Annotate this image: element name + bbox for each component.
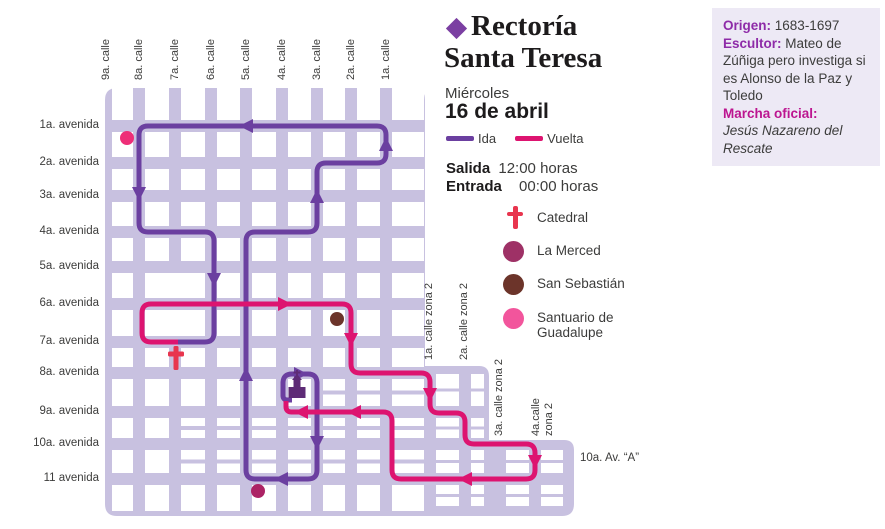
city-block bbox=[181, 418, 205, 426]
city-block bbox=[217, 310, 240, 336]
city-block bbox=[112, 348, 133, 367]
city-block bbox=[357, 450, 380, 460]
calle-label: 1a. calle bbox=[380, 39, 393, 80]
city-block bbox=[288, 273, 311, 298]
city-block bbox=[252, 132, 276, 157]
city-block bbox=[471, 374, 484, 389]
origen-value: 1683-1697 bbox=[775, 18, 840, 33]
city-block bbox=[392, 88, 424, 120]
city-block bbox=[392, 418, 424, 426]
zona2-calle-label: 3a. calle zona 2 bbox=[493, 359, 506, 436]
city-block bbox=[357, 418, 380, 426]
city-block bbox=[288, 88, 311, 120]
city-block bbox=[288, 464, 311, 474]
calle-label: 2a. calle bbox=[345, 39, 358, 80]
city-block bbox=[323, 464, 345, 474]
city-block bbox=[252, 418, 276, 426]
escultor-label: Escultor: bbox=[723, 36, 782, 51]
entrada-label: Entrada bbox=[446, 178, 502, 195]
city-block bbox=[217, 418, 240, 426]
city-block bbox=[288, 132, 311, 157]
city-block bbox=[181, 379, 205, 406]
entrada-row: Entrada 00:00 horas bbox=[446, 178, 598, 195]
city-block bbox=[392, 132, 424, 157]
infographic-page: 9a. calle8a. calle7a. calle6a. calle5a. … bbox=[0, 0, 885, 529]
ida-line-icon bbox=[446, 136, 474, 141]
city-block bbox=[217, 238, 240, 261]
landmark-church-icon bbox=[294, 372, 301, 374]
landmark-dot bbox=[330, 312, 344, 326]
city-block bbox=[181, 169, 205, 190]
city-block bbox=[145, 169, 169, 190]
city-block bbox=[217, 348, 240, 367]
city-block bbox=[436, 450, 459, 460]
city-block bbox=[392, 485, 424, 511]
san-sebastian-dot-icon bbox=[503, 274, 524, 295]
city-block bbox=[288, 430, 311, 438]
city-block bbox=[323, 132, 345, 157]
avenida-label: 2a. avenida bbox=[0, 155, 99, 169]
legend-item-catedral: Catedral bbox=[506, 206, 588, 230]
catedral-cross-icon bbox=[506, 206, 524, 230]
city-block bbox=[357, 132, 380, 157]
city-block bbox=[145, 418, 169, 438]
city-block bbox=[252, 169, 276, 190]
city-block bbox=[357, 273, 380, 298]
city-block bbox=[323, 169, 345, 190]
city-block bbox=[471, 392, 484, 407]
city-block bbox=[217, 485, 240, 511]
city-block bbox=[323, 395, 345, 407]
city-block bbox=[323, 485, 345, 511]
city-block bbox=[357, 202, 380, 226]
salida-value: 12:00 horas bbox=[498, 160, 577, 177]
legend-label: La Merced bbox=[537, 243, 601, 258]
legend-label: Catedral bbox=[537, 210, 588, 225]
avenida-a-label: 10a. Av. “A” bbox=[580, 452, 639, 464]
calle-label: 5a. calle bbox=[240, 39, 253, 80]
city-block bbox=[436, 418, 459, 427]
city-block bbox=[471, 430, 484, 439]
zona2-calle-label: 1a. calle zona 2 bbox=[423, 283, 436, 360]
city-block bbox=[436, 374, 459, 389]
avenida-label: 7a. avenida bbox=[0, 334, 99, 348]
city-block bbox=[217, 88, 240, 120]
city-block bbox=[541, 497, 563, 506]
landmark-dot bbox=[120, 131, 134, 145]
city-block bbox=[392, 310, 424, 336]
legend-label: San Sebastián bbox=[537, 276, 625, 291]
city-block bbox=[288, 169, 311, 190]
origen-label: Origen: bbox=[723, 18, 771, 33]
marcha-value: Jesús Nazareno del Rescate bbox=[723, 123, 842, 156]
avenida-label: 10a. avenida bbox=[0, 436, 99, 450]
city-block bbox=[112, 202, 133, 226]
city-block bbox=[181, 238, 205, 261]
city-block bbox=[357, 430, 380, 438]
city-block bbox=[323, 202, 345, 226]
page-title-line2: Santa Teresa bbox=[444, 42, 602, 74]
city-block bbox=[217, 202, 240, 226]
city-block bbox=[392, 238, 424, 261]
city-block bbox=[145, 450, 169, 473]
landmark-church-icon bbox=[294, 379, 301, 398]
city-block bbox=[112, 418, 133, 438]
city-block bbox=[323, 273, 345, 298]
vuelta-label: Vuelta bbox=[547, 131, 583, 146]
city-block bbox=[392, 379, 424, 391]
city-block bbox=[541, 450, 563, 460]
city-block bbox=[145, 88, 169, 120]
entrada-value: 00:00 horas bbox=[519, 178, 598, 195]
city-block bbox=[181, 464, 205, 474]
city-block bbox=[357, 464, 380, 474]
city-block bbox=[181, 88, 205, 120]
calle-label: 6a. calle bbox=[205, 39, 218, 80]
santuario-dot-icon bbox=[503, 308, 524, 329]
legend-item-la-merced: La Merced bbox=[503, 241, 601, 262]
landmark-cross-icon bbox=[168, 352, 184, 357]
city-block bbox=[112, 450, 133, 473]
city-block bbox=[288, 202, 311, 226]
city-block bbox=[252, 450, 276, 460]
zona2-calle-label: 4a.calle zona 2 bbox=[530, 398, 556, 436]
city-block bbox=[252, 348, 276, 367]
city-block bbox=[252, 464, 276, 474]
city-block bbox=[181, 202, 205, 226]
city-block bbox=[181, 132, 205, 157]
city-block bbox=[392, 169, 424, 190]
city-block bbox=[252, 202, 276, 226]
calle-label: 9a. calle bbox=[100, 39, 113, 80]
city-block bbox=[541, 485, 563, 494]
zona2-calle-label: 2a. calle zona 2 bbox=[458, 283, 471, 360]
city-block bbox=[506, 485, 529, 494]
avenida-label: 3a. avenida bbox=[0, 188, 99, 202]
city-block bbox=[112, 379, 133, 406]
city-block bbox=[392, 450, 424, 460]
calle-label: 4a. calle bbox=[276, 39, 289, 80]
avenida-label: 11 avenida bbox=[0, 471, 99, 485]
avenida-label: 5a. avenida bbox=[0, 259, 99, 273]
city-block bbox=[145, 132, 169, 157]
city-block bbox=[217, 169, 240, 190]
city-block bbox=[288, 238, 311, 261]
marcha-label: Marcha oficial: bbox=[723, 106, 818, 121]
city-block bbox=[357, 310, 380, 336]
city-block bbox=[471, 497, 484, 506]
city-block bbox=[112, 273, 133, 298]
city-block bbox=[145, 485, 169, 511]
city-block bbox=[252, 273, 276, 298]
city-block bbox=[323, 88, 345, 120]
city-block bbox=[392, 202, 424, 226]
city-block bbox=[181, 348, 205, 367]
city-block bbox=[145, 348, 169, 367]
city-block bbox=[145, 238, 169, 261]
city-block bbox=[323, 450, 345, 460]
city-block bbox=[288, 485, 311, 511]
avenida-label: 1a. avenida bbox=[0, 118, 99, 132]
city-block bbox=[252, 310, 276, 336]
city-block bbox=[217, 430, 240, 438]
city-block bbox=[217, 464, 240, 474]
city-block bbox=[288, 348, 311, 367]
city-block bbox=[436, 392, 459, 407]
avenida-label: 8a. avenida bbox=[0, 365, 99, 379]
city-block bbox=[392, 464, 424, 474]
page-title-line1: Rectoría bbox=[471, 10, 577, 42]
legend-label: Santuario de Guadalupe bbox=[537, 310, 632, 340]
date-label: 16 de abril bbox=[445, 100, 549, 124]
city-block bbox=[217, 273, 240, 298]
salida-label: Salida bbox=[446, 160, 490, 177]
city-block bbox=[112, 238, 133, 261]
city-block bbox=[506, 497, 529, 506]
city-block bbox=[357, 348, 380, 367]
city-block bbox=[471, 418, 484, 427]
city-block bbox=[252, 379, 276, 406]
city-block bbox=[506, 463, 529, 473]
city-block bbox=[323, 348, 345, 367]
calle-label: 8a. calle bbox=[133, 39, 146, 80]
city-block bbox=[145, 379, 169, 406]
city-block bbox=[217, 132, 240, 157]
city-block bbox=[357, 88, 380, 120]
city-block bbox=[392, 348, 424, 367]
city-block bbox=[145, 310, 205, 336]
city-block bbox=[357, 485, 380, 511]
city-block bbox=[181, 485, 205, 511]
city-block bbox=[471, 450, 484, 460]
city-block bbox=[323, 430, 345, 438]
city-block bbox=[392, 273, 424, 298]
city-block bbox=[471, 485, 484, 494]
ida-label: Ida bbox=[478, 131, 496, 146]
city-block bbox=[392, 395, 424, 407]
city-block bbox=[392, 430, 424, 438]
avenida-label: 6a. avenida bbox=[0, 296, 99, 310]
city-block bbox=[252, 238, 276, 261]
city-block bbox=[357, 395, 380, 407]
city-block bbox=[252, 88, 276, 120]
info-sidebar: Origen: 1683-1697 Escultor: Mateo de Zúñ… bbox=[712, 8, 880, 166]
city-block bbox=[323, 418, 345, 426]
city-block bbox=[145, 273, 205, 298]
city-block bbox=[357, 379, 380, 391]
city-block bbox=[436, 485, 459, 494]
city-block bbox=[112, 88, 133, 120]
avenida-label: 4a. avenida bbox=[0, 224, 99, 238]
city-block bbox=[145, 202, 169, 226]
salida-row: Salida 12:00 horas bbox=[446, 160, 578, 177]
calle-label: 7a. calle bbox=[169, 39, 182, 80]
city-block bbox=[506, 450, 529, 460]
city-block bbox=[112, 169, 133, 190]
landmark-dot bbox=[251, 484, 265, 498]
legend-item-santuario: Santuario de Guadalupe bbox=[503, 308, 632, 340]
city-block bbox=[323, 238, 345, 261]
city-block bbox=[181, 430, 205, 438]
city-block bbox=[288, 310, 311, 336]
city-block bbox=[357, 238, 380, 261]
city-block bbox=[217, 379, 240, 406]
city-block bbox=[217, 450, 240, 460]
city-block bbox=[323, 379, 345, 391]
city-block bbox=[288, 418, 311, 426]
city-block bbox=[436, 497, 459, 506]
route-legend: Ida Vuelta bbox=[446, 131, 583, 146]
calle-label: 3a. calle bbox=[311, 39, 324, 80]
city-block bbox=[436, 430, 459, 439]
legend-item-san-sebastian: San Sebastián bbox=[503, 274, 625, 295]
city-block bbox=[181, 450, 205, 460]
city-block bbox=[252, 430, 276, 438]
city-block bbox=[471, 463, 484, 473]
city-block bbox=[112, 485, 133, 511]
city-block bbox=[541, 463, 563, 473]
city-block bbox=[436, 463, 459, 473]
vuelta-line-icon bbox=[515, 136, 543, 141]
city-block bbox=[357, 169, 380, 190]
avenida-label: 9a. avenida bbox=[0, 404, 99, 418]
city-block bbox=[288, 450, 311, 460]
city-block bbox=[112, 310, 133, 336]
landmark-cross-icon bbox=[174, 346, 179, 370]
la-merced-dot-icon bbox=[503, 241, 524, 262]
